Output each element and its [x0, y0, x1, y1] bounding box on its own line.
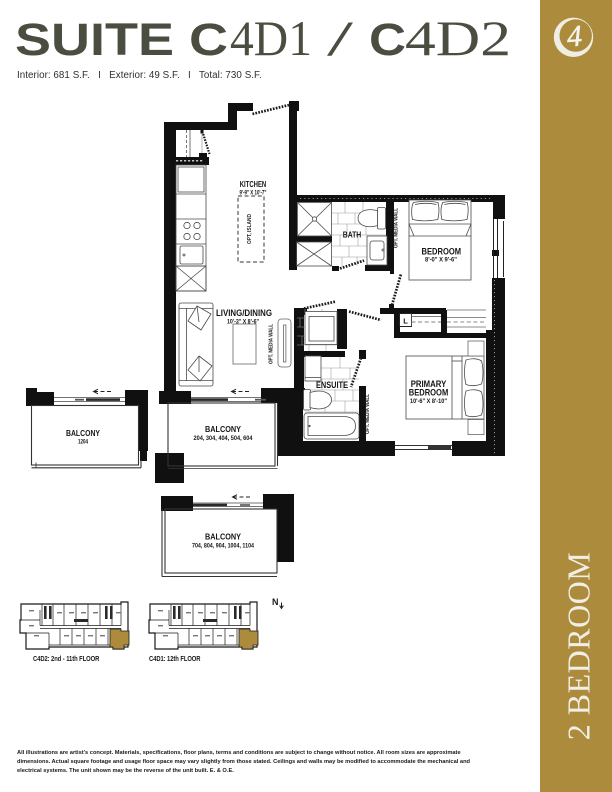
svg-text:LIVING/DINING: LIVING/DINING	[216, 308, 272, 319]
svg-text:L: L	[403, 317, 408, 326]
svg-text:BATH: BATH	[343, 230, 362, 240]
svg-text:204, 304, 404, 504, 604: 204, 304, 404, 504, 604	[194, 436, 254, 442]
svg-text:10'-6" X 8'-10": 10'-6" X 8'-10"	[410, 398, 447, 405]
svg-text:ENSUITE: ENSUITE	[316, 380, 348, 390]
svg-text:BALCONY: BALCONY	[205, 532, 241, 542]
svg-text:8'-0" X 9'-6": 8'-0" X 9'-6"	[425, 257, 457, 264]
svg-text:9'-9" X 10'-7": 9'-9" X 10'-7"	[240, 190, 267, 197]
svg-text:OPT. MEDIA WALL: OPT. MEDIA WALL	[269, 323, 275, 364]
svg-text:BALCONY: BALCONY	[66, 428, 100, 438]
svg-text:OPT, ISLAND: OPT, ISLAND	[247, 214, 253, 244]
svg-text:OPT. MEDIA WALL: OPT. MEDIA WALL	[394, 207, 400, 248]
svg-text:704, 804, 904, 1004, 1104: 704, 804, 904, 1004, 1104	[192, 544, 255, 550]
svg-text:N: N	[272, 597, 279, 607]
svg-text:BALCONY: BALCONY	[205, 424, 241, 434]
svg-text:BEDROOM: BEDROOM	[409, 388, 449, 399]
svg-text:KITCHEN: KITCHEN	[240, 179, 267, 189]
svg-text:10'-3" X 8'-6": 10'-3" X 8'-6"	[227, 319, 259, 326]
svg-text:1204: 1204	[78, 440, 88, 446]
svg-text:OPT. MEDIA WALL: OPT. MEDIA WALL	[365, 393, 371, 434]
